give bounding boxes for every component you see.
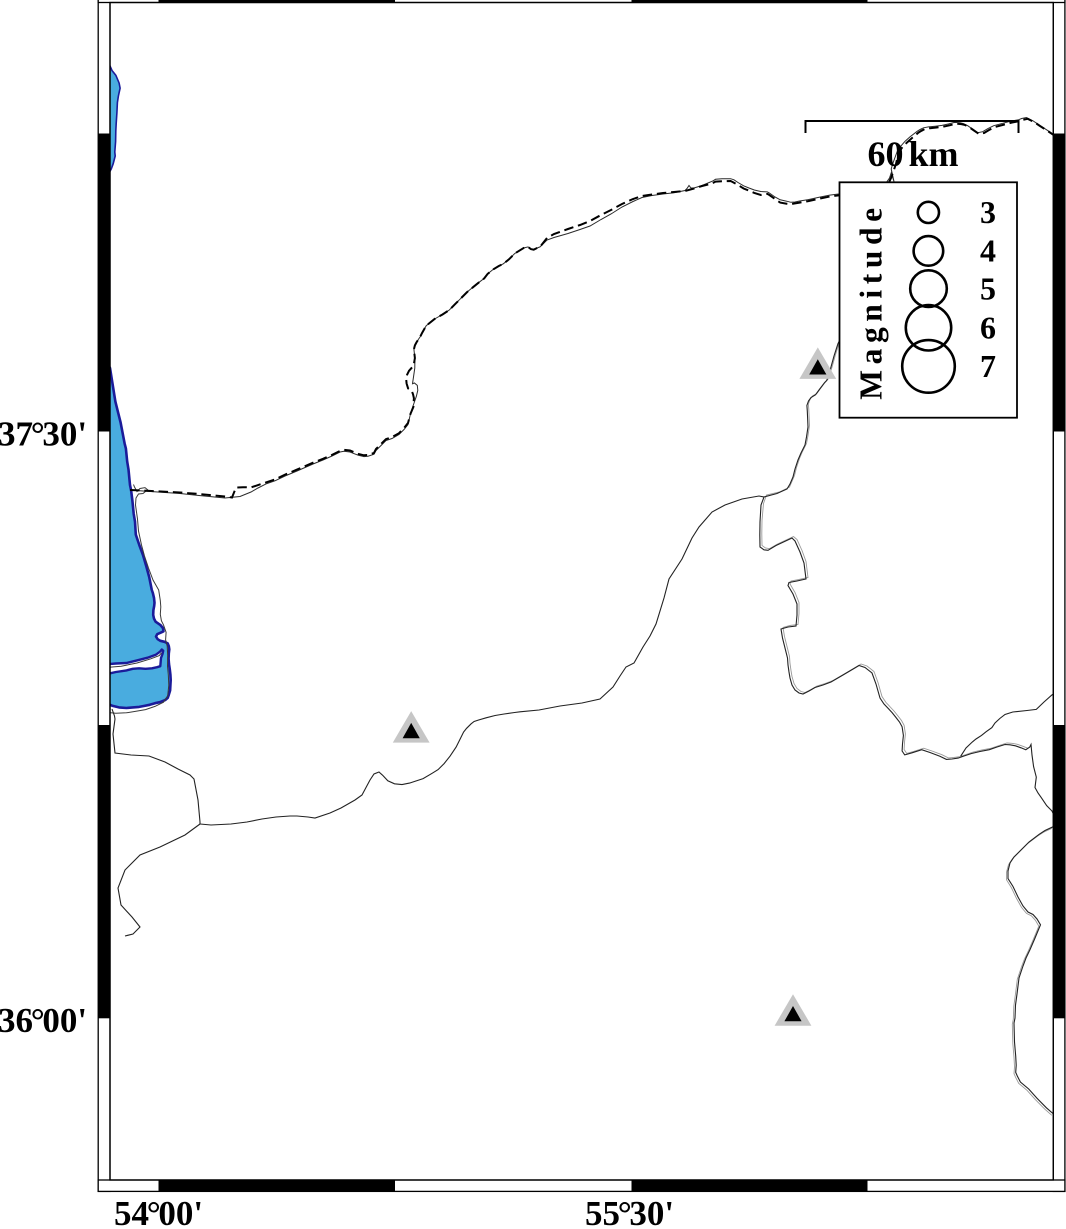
svg-text:36°00': 36°00' <box>0 1001 87 1040</box>
svg-text:6: 6 <box>980 310 996 346</box>
svg-text:Magnitude: Magnitude <box>854 202 889 399</box>
svg-text:5: 5 <box>980 270 996 306</box>
svg-text:60 km: 60 km <box>868 134 959 174</box>
svg-text:55°30': 55°30' <box>585 1194 674 1229</box>
svg-text:3: 3 <box>980 194 996 230</box>
svg-text:4: 4 <box>980 233 996 269</box>
svg-text:54°00': 54°00' <box>114 1194 203 1229</box>
svg-text:7: 7 <box>980 348 996 384</box>
svg-text:37°30': 37°30' <box>0 415 87 454</box>
